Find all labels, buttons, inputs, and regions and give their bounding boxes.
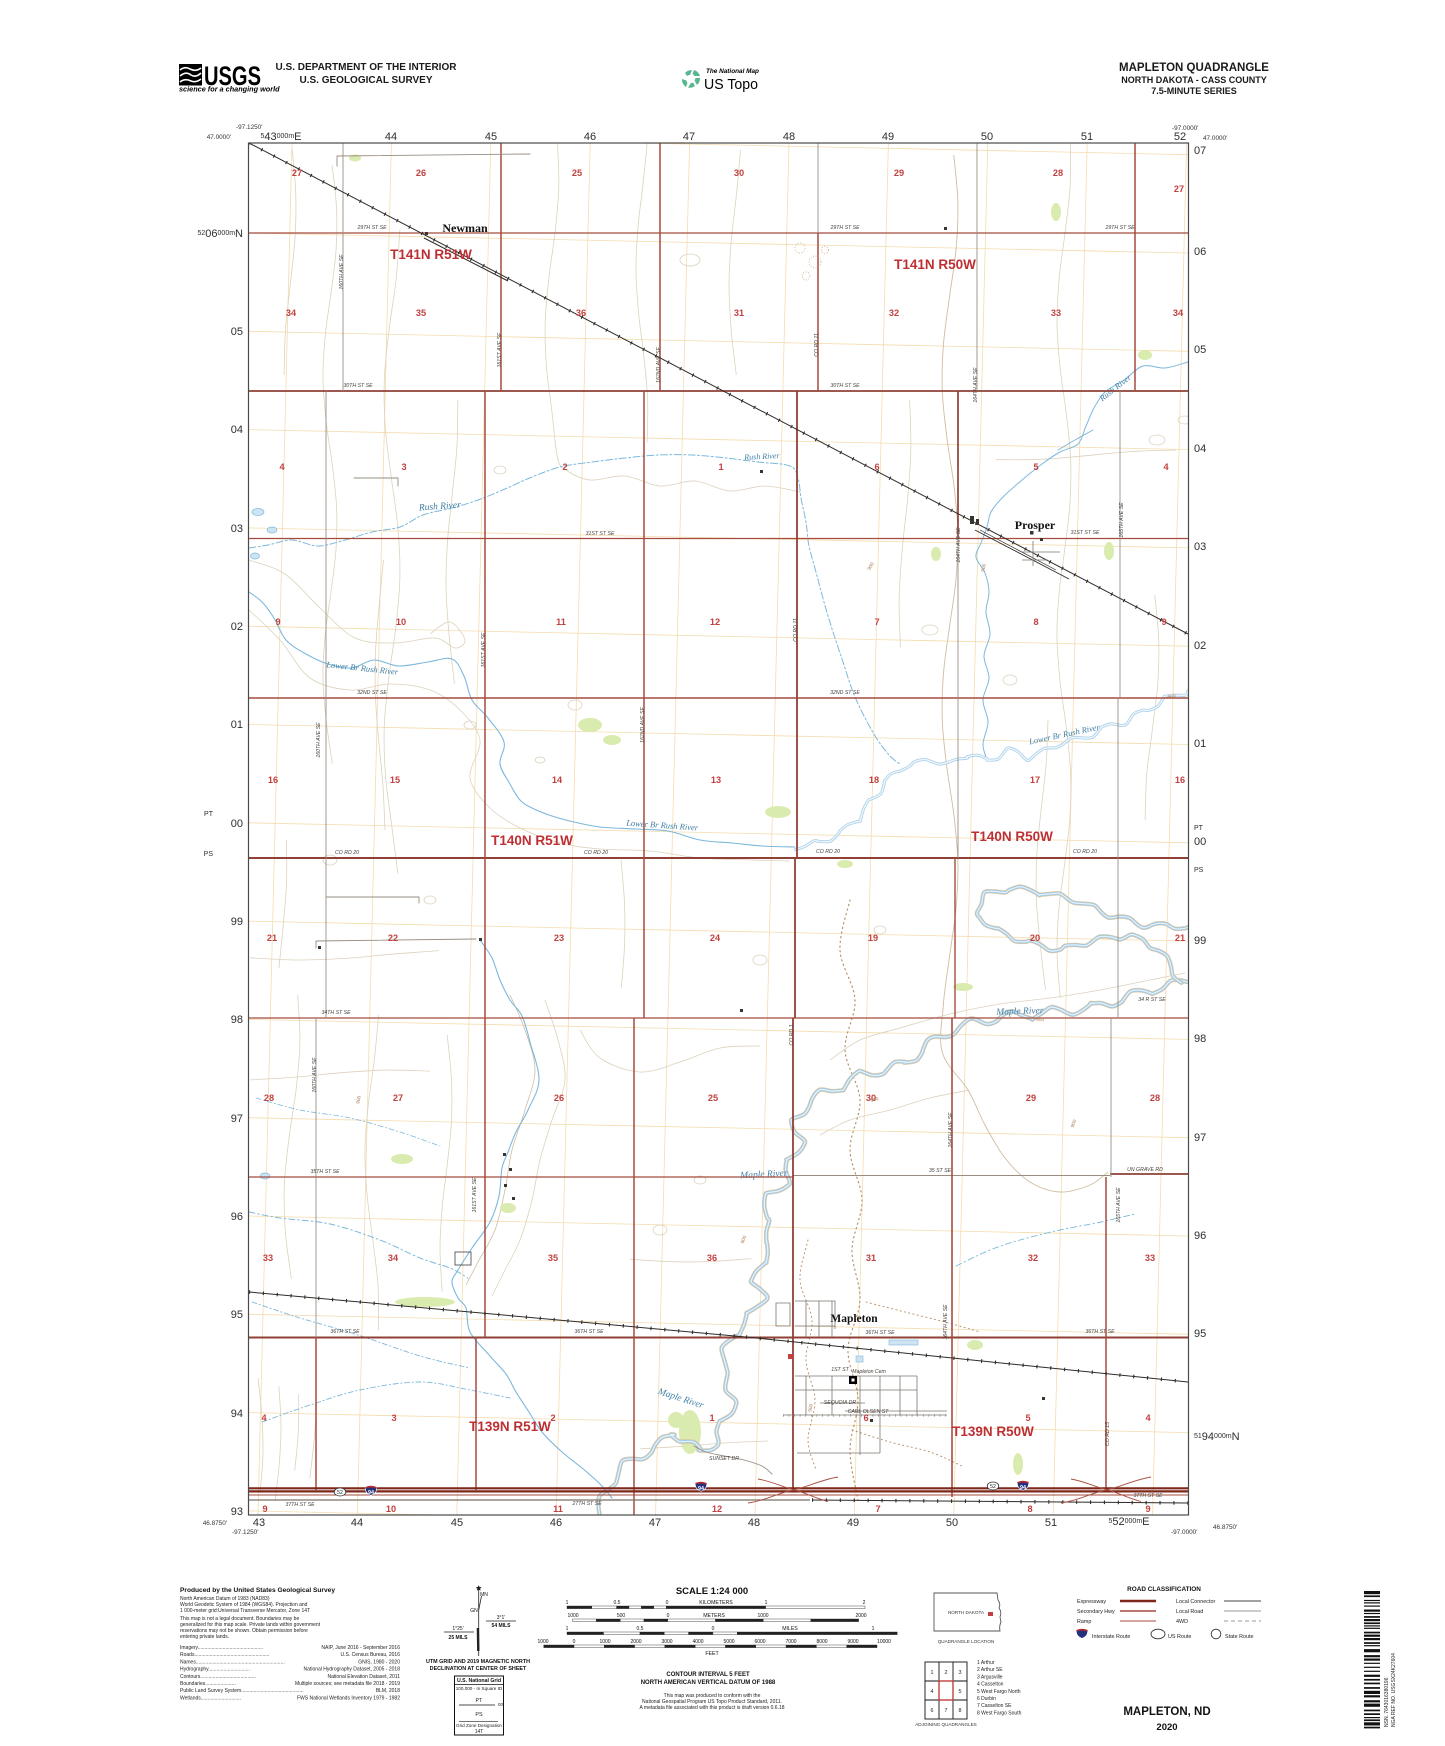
svg-text:3: 3: [391, 1413, 396, 1423]
svg-text:3: 3: [959, 1670, 962, 1676]
svg-text:93: 93: [231, 1506, 243, 1518]
svg-text:1000: 1000: [537, 1639, 548, 1645]
svg-text:CO RD 11: CO RD 11: [814, 333, 820, 357]
svg-text:10: 10: [396, 617, 406, 627]
svg-text:164TH AVE SE: 164TH AVE SE: [956, 527, 962, 563]
svg-text:00: 00: [1194, 836, 1206, 848]
svg-text:35 ST SE: 35 ST SE: [929, 1168, 952, 1174]
svg-text:162ND AVE SE: 162ND AVE SE: [640, 707, 646, 743]
svg-text:35: 35: [548, 1253, 558, 1263]
svg-text:1000: 1000: [567, 1613, 578, 1619]
svg-text:29TH ST SE: 29TH ST SE: [1104, 225, 1135, 231]
svg-text:7000: 7000: [785, 1639, 796, 1645]
svg-text:32ND ST SE: 32ND ST SE: [357, 690, 387, 696]
svg-text:T139N R50W: T139N R50W: [952, 1424, 1034, 1439]
svg-text:Expressway: Expressway: [1077, 1599, 1106, 1605]
svg-text:00: 00: [231, 818, 243, 830]
svg-text:34: 34: [388, 1253, 399, 1263]
svg-text:8: 8: [1033, 617, 1038, 627]
svg-text:CO RD 11: CO RD 11: [793, 618, 799, 642]
svg-text:T140N R50W: T140N R50W: [971, 829, 1053, 844]
svg-text:16: 16: [268, 775, 278, 785]
svg-text:162ND AVE SE: 162ND AVE SE: [656, 347, 662, 383]
svg-text:Contours......................: Contours................................…: [180, 1674, 256, 1680]
svg-text:1: 1: [566, 1600, 569, 1606]
svg-text:1000: 1000: [757, 1613, 768, 1619]
svg-text:48: 48: [783, 131, 795, 143]
svg-text:Maple River: Maple River: [995, 1006, 1044, 1018]
svg-text:A metadata file associated wit: A metadata file associated with this pro…: [639, 1705, 784, 1711]
svg-text:43: 43: [253, 1517, 265, 1529]
svg-text:164TH AVE SE: 164TH AVE SE: [943, 1304, 949, 1340]
svg-text:PS: PS: [1194, 867, 1204, 874]
svg-text:11: 11: [556, 617, 566, 627]
svg-text:Mapleton Cem: Mapleton Cem: [852, 1369, 886, 1375]
svg-text:36: 36: [576, 308, 586, 318]
svg-text:100,000 - m Square ID: 100,000 - m Square ID: [456, 1686, 503, 1691]
svg-text:MAPLETON QUADRANGLE: MAPLETON QUADRANGLE: [1119, 62, 1269, 74]
svg-text:0: 0: [573, 1639, 576, 1645]
svg-text:SUNSET DR: SUNSET DR: [709, 1456, 739, 1462]
svg-text:19: 19: [868, 933, 878, 943]
svg-text:15: 15: [390, 775, 400, 785]
svg-text:Names.........................: Names...................................…: [180, 1659, 285, 1665]
svg-text:3: 3: [401, 462, 406, 472]
svg-text:GNIS, 1980 - 2020: GNIS, 1980 - 2020: [358, 1659, 400, 1665]
svg-text:2: 2: [550, 1413, 555, 1423]
svg-text:161ST AVE SE: 161ST AVE SE: [472, 1177, 478, 1213]
svg-text:5: 5: [959, 1689, 962, 1695]
svg-text:T141N R50W: T141N R50W: [894, 257, 976, 272]
svg-text:13: 13: [711, 775, 721, 785]
svg-text:CO RD 20: CO RD 20: [1073, 849, 1097, 855]
svg-text:27: 27: [292, 168, 302, 178]
svg-text:33: 33: [263, 1253, 273, 1263]
svg-text:Interstate Route: Interstate Route: [1092, 1634, 1130, 1640]
svg-text:164TH AVE SE: 164TH AVE SE: [973, 367, 979, 403]
svg-text:0: 0: [666, 1600, 669, 1606]
svg-text:24: 24: [710, 933, 721, 943]
svg-text:01: 01: [1194, 738, 1206, 750]
svg-text:34: 34: [286, 308, 297, 318]
svg-text:20: 20: [1030, 933, 1040, 943]
svg-text:52: 52: [337, 1490, 343, 1496]
svg-text:36: 36: [707, 1253, 717, 1263]
svg-text:Newman: Newman: [442, 221, 488, 235]
svg-text:10000: 10000: [877, 1639, 891, 1645]
svg-text:52: 52: [1174, 131, 1186, 143]
svg-text:500: 500: [617, 1613, 626, 1619]
svg-text:8 West Fargo South: 8 West Fargo South: [977, 1710, 1022, 1716]
svg-text:CO RD 1: CO RD 1: [789, 1024, 795, 1045]
svg-text:entering private lands.: entering private lands.: [180, 1634, 229, 1640]
svg-text:T140N R51W: T140N R51W: [491, 833, 573, 848]
svg-text:NORTH DAKOTA: NORTH DAKOTA: [948, 1610, 985, 1615]
svg-text:-97.1250′: -97.1250′: [232, 1529, 259, 1536]
svg-text:6: 6: [874, 462, 879, 472]
svg-text:Secondary Hwy: Secondary Hwy: [1077, 1609, 1115, 1615]
svg-text:NGA REF NO. USGSX24K27604: NGA REF NO. USGSX24K27604: [1391, 1653, 1397, 1727]
svg-text:27TH ST SE: 27TH ST SE: [571, 1501, 602, 1507]
svg-text:30TH ST SE: 30TH ST SE: [343, 383, 373, 389]
svg-text:99: 99: [1194, 935, 1206, 947]
svg-text:12: 12: [712, 1504, 722, 1514]
svg-text:5: 5: [1025, 1413, 1030, 1423]
svg-text:7 Casselton SE: 7 Casselton SE: [977, 1703, 1012, 1709]
svg-text:4: 4: [1145, 1413, 1151, 1423]
svg-text:49: 49: [847, 1517, 859, 1529]
svg-text:29: 29: [1026, 1093, 1036, 1103]
svg-text:NORTH AMERICAN VERTICAL DATUM: NORTH AMERICAN VERTICAL DATUM OF 1988: [641, 1680, 776, 1686]
svg-text:PS: PS: [204, 851, 214, 858]
svg-text:95: 95: [1194, 1328, 1206, 1340]
svg-text:8: 8: [959, 1708, 962, 1714]
svg-text:0: 0: [667, 1613, 670, 1619]
svg-text:1ST ST: 1ST ST: [831, 1367, 849, 1373]
svg-text:48: 48: [748, 1517, 760, 1529]
svg-text:35: 35: [416, 308, 426, 318]
svg-text:The National Map: The National Map: [706, 68, 759, 75]
svg-text:01: 01: [231, 719, 243, 731]
svg-text:2: 2: [863, 1600, 866, 1606]
svg-text:10: 10: [386, 1504, 396, 1514]
svg-text:2 Arthur SE: 2 Arthur SE: [977, 1667, 1003, 1673]
svg-text:-97.1250′: -97.1250′: [236, 124, 263, 131]
svg-text:49: 49: [882, 131, 894, 143]
svg-text:8000: 8000: [816, 1639, 827, 1645]
svg-text:9000: 9000: [847, 1639, 858, 1645]
svg-text:2020: 2020: [1156, 1722, 1177, 1733]
svg-text:0: 0: [712, 1626, 715, 1632]
svg-text:21: 21: [1175, 933, 1185, 943]
svg-text:FWS National Wetlands Inven: FWS National Wetlands Inventory 1979 - 1…: [297, 1695, 400, 1701]
svg-text:FEET: FEET: [705, 1651, 719, 1657]
svg-text:32ND ST SE: 32ND ST SE: [830, 690, 860, 696]
svg-text:37TH ST SE: 37TH ST SE: [285, 1502, 315, 1508]
svg-text:CO RD 20: CO RD 20: [584, 850, 608, 856]
svg-text:4: 4: [931, 1689, 934, 1695]
svg-text:1: 1: [931, 1670, 934, 1676]
svg-text:50: 50: [981, 131, 993, 143]
svg-text:6000: 6000: [754, 1639, 765, 1645]
svg-text:METERS: METERS: [703, 1613, 725, 1619]
svg-text:US Topo: US Topo: [704, 76, 758, 93]
svg-text:94: 94: [368, 1490, 374, 1496]
svg-text:06: 06: [1194, 246, 1206, 258]
svg-text:25 MILS: 25 MILS: [449, 1635, 469, 1641]
svg-text:29TH ST SE: 29TH ST SE: [356, 225, 387, 231]
svg-text:CO RD 20: CO RD 20: [335, 850, 359, 856]
svg-text:94: 94: [1020, 1485, 1026, 1491]
svg-text:07: 07: [1194, 145, 1206, 157]
svg-text:Grid Zone Designation: Grid Zone Designation: [456, 1723, 502, 1728]
svg-text:36TH ST SE: 36TH ST SE: [574, 1329, 604, 1335]
svg-text:1: 1: [765, 1600, 768, 1606]
svg-text:Produced by the United States: Produced by the United States Geological…: [180, 1587, 335, 1594]
svg-text:33: 33: [1145, 1253, 1155, 1263]
svg-text:7: 7: [874, 617, 879, 627]
svg-text:4: 4: [1163, 462, 1169, 472]
svg-text:160TH AVE SE: 160TH AVE SE: [316, 722, 322, 758]
svg-text:1: 1: [872, 1626, 875, 1632]
svg-text:160TH AVE SE: 160TH AVE SE: [339, 254, 345, 290]
svg-text:96: 96: [1194, 1230, 1206, 1242]
svg-text:ADJOINING QUADRANGLES: ADJOINING QUADRANGLES: [915, 1722, 977, 1727]
svg-text:9: 9: [1161, 617, 1166, 627]
svg-text:165TH AVE SE: 165TH AVE SE: [1119, 502, 1125, 538]
svg-text:94: 94: [231, 1408, 243, 1420]
svg-text:PS: PS: [475, 1712, 483, 1718]
svg-text:Hydrography...................: Hydrography.............................…: [180, 1667, 250, 1673]
svg-text:1°25′: 1°25′: [452, 1626, 463, 1632]
svg-text:Public Land Survey Syste: Public Land Survey System...............…: [180, 1688, 304, 1694]
svg-text:51: 51: [1081, 131, 1093, 143]
svg-text:U.S. Census Bureau, 2016: U.S. Census Bureau, 2016: [341, 1652, 401, 1658]
svg-text:Mapleton: Mapleton: [830, 1313, 878, 1325]
svg-text:NAIP, June 2016 - September 20: NAIP, June 2016 - September 2016: [321, 1645, 400, 1651]
svg-text:Multiple sources; see metad: Multiple sources; see metadata file 2018…: [295, 1681, 400, 1687]
svg-text:27: 27: [393, 1093, 403, 1103]
svg-text:50: 50: [946, 1517, 958, 1529]
svg-text:29TH ST SE: 29TH ST SE: [829, 225, 860, 231]
svg-text:UTM GRID AND 2019 MAGNETIC NOR: UTM GRID AND 2019 MAGNETIC NORTH: [426, 1659, 530, 1665]
svg-text:161ST AVE SE: 161ST AVE SE: [497, 332, 503, 368]
svg-text:31: 31: [734, 308, 744, 318]
svg-text:97: 97: [231, 1113, 243, 1125]
svg-text:03: 03: [231, 523, 243, 535]
svg-text:00: 00: [498, 1702, 503, 1707]
svg-text:T141N R51W: T141N R51W: [390, 247, 472, 262]
svg-text:05: 05: [231, 326, 243, 338]
svg-text:47: 47: [649, 1517, 661, 1529]
svg-text:Local Connector: Local Connector: [1176, 1599, 1215, 1605]
svg-text:98: 98: [1194, 1033, 1206, 1045]
svg-text:34TH ST SE: 34TH ST SE: [321, 1010, 351, 1016]
svg-text:Roads.........................: Roads...................................…: [180, 1652, 269, 1658]
svg-text:36TH ST SE: 36TH ST SE: [865, 1330, 895, 1336]
svg-text:Imagery.......................: Imagery.................................…: [180, 1645, 263, 1651]
svg-text:4 Casselton: 4 Casselton: [977, 1682, 1004, 1688]
svg-text:54 MILS: 54 MILS: [492, 1623, 512, 1629]
svg-text:9: 9: [262, 1504, 267, 1514]
svg-text:02: 02: [1194, 640, 1206, 652]
svg-text:14: 14: [552, 775, 563, 785]
svg-text:3 Argusville: 3 Argusville: [977, 1674, 1003, 1680]
svg-text:04: 04: [1194, 443, 1206, 455]
svg-text:CO RD 20: CO RD 20: [816, 849, 840, 855]
svg-text:25: 25: [708, 1093, 718, 1103]
svg-text:25: 25: [572, 168, 582, 178]
svg-text:97: 97: [1194, 1132, 1206, 1144]
svg-text:US Route: US Route: [1168, 1634, 1191, 1640]
svg-text:95: 95: [231, 1309, 243, 1321]
svg-text:17: 17: [1030, 775, 1040, 785]
svg-text:PT: PT: [204, 811, 214, 818]
svg-text:30: 30: [734, 168, 744, 178]
svg-text:GN: GN: [470, 1608, 478, 1614]
svg-text:05: 05: [1194, 344, 1206, 356]
svg-text:165TH AVE SE: 165TH AVE SE: [1116, 1187, 1122, 1223]
svg-text:1 Arthur: 1 Arthur: [977, 1660, 995, 1666]
svg-text:UN GRAVE RD: UN GRAVE RD: [1127, 1167, 1163, 1173]
svg-text:44: 44: [351, 1517, 363, 1529]
svg-text:28: 28: [1150, 1093, 1160, 1103]
svg-text:SEQUOIA DR: SEQUOIA DR: [824, 1400, 857, 1406]
svg-text:NORTH DAKOTA - CASS COUNTY: NORTH DAKOTA - CASS COUNTY: [1121, 75, 1267, 85]
svg-text:29: 29: [894, 168, 904, 178]
svg-text:46.8750′: 46.8750′: [1213, 1524, 1238, 1531]
svg-text:47.0000′: 47.0000′: [207, 134, 232, 141]
svg-text:9: 9: [1145, 1504, 1150, 1514]
svg-text:0.5: 0.5: [637, 1626, 644, 1632]
svg-text:2000: 2000: [855, 1613, 866, 1619]
svg-text:Wetlands......................: Wetlands.............................: [180, 1695, 241, 1701]
svg-text:34: 34: [1173, 308, 1184, 318]
svg-text:Ramp: Ramp: [1077, 1619, 1091, 1625]
svg-text:33: 33: [1051, 308, 1061, 318]
svg-text:22: 22: [388, 933, 398, 943]
svg-text:6: 6: [931, 1708, 934, 1714]
svg-text:99: 99: [231, 916, 243, 928]
svg-text:T139N R51W: T139N R51W: [469, 1419, 551, 1434]
svg-text:MN: MN: [480, 1592, 488, 1598]
svg-text:30TH ST SE: 30TH ST SE: [830, 383, 860, 389]
svg-text:Boundaries....................: Boundaries......................: [180, 1681, 236, 1687]
svg-text:164TH AVE SE: 164TH AVE SE: [948, 1112, 954, 1148]
svg-text:0.5: 0.5: [614, 1600, 621, 1606]
svg-text:QUADRANGLE LOCATION: QUADRANGLE LOCATION: [938, 1639, 995, 1644]
svg-text:46: 46: [584, 131, 596, 143]
svg-text:U.S. National Grid: U.S. National Grid: [457, 1678, 501, 1684]
svg-text:26: 26: [554, 1093, 564, 1103]
svg-text:4000: 4000: [692, 1639, 703, 1645]
svg-text:PT: PT: [1194, 825, 1204, 832]
svg-text:DECLINATION AT CENTER OF SHEET: DECLINATION AT CENTER OF SHEET: [430, 1666, 527, 1672]
svg-text:U.S. GEOLOGICAL SURVEY: U.S. GEOLOGICAL SURVEY: [300, 75, 433, 86]
svg-text:02: 02: [231, 621, 243, 633]
svg-text:36TH ST SE: 36TH ST SE: [330, 1329, 360, 1335]
svg-text:CARL OLSEN ST: CARL OLSEN ST: [848, 1409, 890, 1415]
svg-text:1: 1: [566, 1626, 569, 1632]
svg-text:03: 03: [1194, 541, 1206, 553]
svg-text:4WD: 4WD: [1176, 1619, 1188, 1625]
svg-text:MAPLETON, ND: MAPLETON, ND: [1123, 1706, 1210, 1718]
svg-text:18: 18: [869, 775, 879, 785]
svg-text:27: 27: [1174, 184, 1184, 194]
svg-text:U.S. DEPARTMENT OF THE INTERIO: U.S. DEPARTMENT OF THE INTERIOR: [276, 62, 458, 73]
svg-text:science for a changing world: science for a changing world: [179, 85, 280, 94]
svg-text:5: 5: [1033, 462, 1038, 472]
svg-text:SCALE 1:24 000: SCALE 1:24 000: [676, 1586, 748, 1597]
svg-text:47.0000′: 47.0000′: [1203, 135, 1228, 142]
svg-text:4: 4: [279, 462, 285, 472]
svg-text:46.8750′: 46.8750′: [203, 1520, 228, 1527]
svg-text:31ST ST SE: 31ST ST SE: [586, 531, 615, 537]
svg-text:3000: 3000: [661, 1639, 672, 1645]
svg-text:7: 7: [945, 1708, 948, 1714]
svg-text:32: 32: [1028, 1253, 1038, 1263]
svg-text:Local Road: Local Road: [1176, 1609, 1203, 1615]
svg-text:11: 11: [553, 1504, 563, 1514]
svg-text:KILOMETERS: KILOMETERS: [699, 1600, 733, 1606]
svg-text:2000: 2000: [630, 1639, 641, 1645]
svg-text:04: 04: [231, 424, 243, 436]
svg-text:CO RD 15: CO RD 15: [1105, 1422, 1111, 1446]
svg-text:Prosper: Prosper: [1015, 518, 1056, 532]
svg-text:45: 45: [485, 131, 497, 143]
svg-text:28: 28: [264, 1093, 274, 1103]
svg-text:6 Durbin: 6 Durbin: [977, 1696, 996, 1702]
svg-text:46: 46: [550, 1517, 562, 1529]
svg-text:21: 21: [267, 933, 277, 943]
svg-text:7.5-MINUTE SERIES: 7.5-MINUTE SERIES: [1151, 86, 1237, 96]
svg-text:14T: 14T: [475, 1729, 484, 1735]
svg-text:BLM, 2018: BLM, 2018: [376, 1688, 400, 1694]
svg-text:52: 52: [990, 1484, 996, 1490]
svg-text:1000: 1000: [599, 1639, 610, 1645]
svg-text:State Route: State Route: [1225, 1634, 1253, 1640]
svg-text:28: 28: [1053, 168, 1063, 178]
svg-text:1: 1: [718, 462, 723, 472]
svg-text:98: 98: [231, 1014, 243, 1026]
svg-text:44: 44: [385, 131, 397, 143]
svg-text:4: 4: [261, 1413, 267, 1423]
svg-text:PT: PT: [476, 1698, 484, 1704]
svg-text:CONTOUR INTERVAL 5 FEET: CONTOUR INTERVAL 5 FEET: [666, 1672, 750, 1678]
svg-text:3°1′: 3°1′: [497, 1615, 506, 1621]
svg-text:MILES: MILES: [782, 1626, 798, 1632]
svg-text:160TH AVE SE: 160TH AVE SE: [312, 1057, 318, 1093]
svg-text:31: 31: [866, 1253, 876, 1263]
svg-text:45: 45: [451, 1517, 463, 1529]
svg-text:47: 47: [683, 131, 695, 143]
svg-text:National Elevation Dataset: National Elevation Dataset, 2011: [328, 1674, 401, 1680]
svg-text:37TH ST SE: 37TH ST SE: [1133, 1493, 1163, 1499]
svg-text:900: 900: [1036, 1017, 1045, 1024]
svg-text:7: 7: [875, 1504, 880, 1514]
svg-text:36TH ST SE: 36TH ST SE: [1085, 1329, 1115, 1335]
svg-text:23: 23: [554, 933, 564, 943]
svg-text:2: 2: [945, 1670, 948, 1676]
svg-text:35TH ST SE: 35TH ST SE: [310, 1169, 340, 1175]
svg-text:8: 8: [1027, 1504, 1032, 1514]
svg-text:2: 2: [562, 462, 567, 472]
svg-text:26: 26: [416, 168, 426, 178]
svg-text:31ST ST SE: 31ST ST SE: [1071, 530, 1100, 536]
svg-text:1: 1: [709, 1413, 714, 1423]
svg-text:94: 94: [698, 1486, 704, 1492]
svg-text:12: 12: [710, 617, 720, 627]
svg-text:5 West Fargo North: 5 West Fargo North: [977, 1689, 1021, 1695]
svg-text:5000: 5000: [723, 1639, 734, 1645]
svg-text:16: 16: [1175, 775, 1185, 785]
svg-text:NSN. 7643016380196: NSN. 7643016380196: [1384, 1677, 1390, 1727]
svg-text:National Hydrography Dataset: National Hydrography Dataset, 2005 - 201…: [304, 1667, 401, 1673]
svg-text:96: 96: [231, 1211, 243, 1223]
svg-text:34 R ST SE: 34 R ST SE: [1138, 997, 1166, 1003]
svg-text:161ST AVE SE: 161ST AVE SE: [481, 632, 487, 668]
svg-text:51: 51: [1045, 1517, 1057, 1529]
svg-text:1 000-meter grid:Universal Tra: 1 000-meter grid:Universal Transverse Me…: [180, 1608, 310, 1614]
svg-text:-97.0000′: -97.0000′: [1171, 1529, 1198, 1536]
svg-text:ROAD CLASSIFICATION: ROAD CLASSIFICATION: [1127, 1586, 1201, 1593]
svg-text:9: 9: [275, 617, 280, 627]
svg-text:32: 32: [889, 308, 899, 318]
